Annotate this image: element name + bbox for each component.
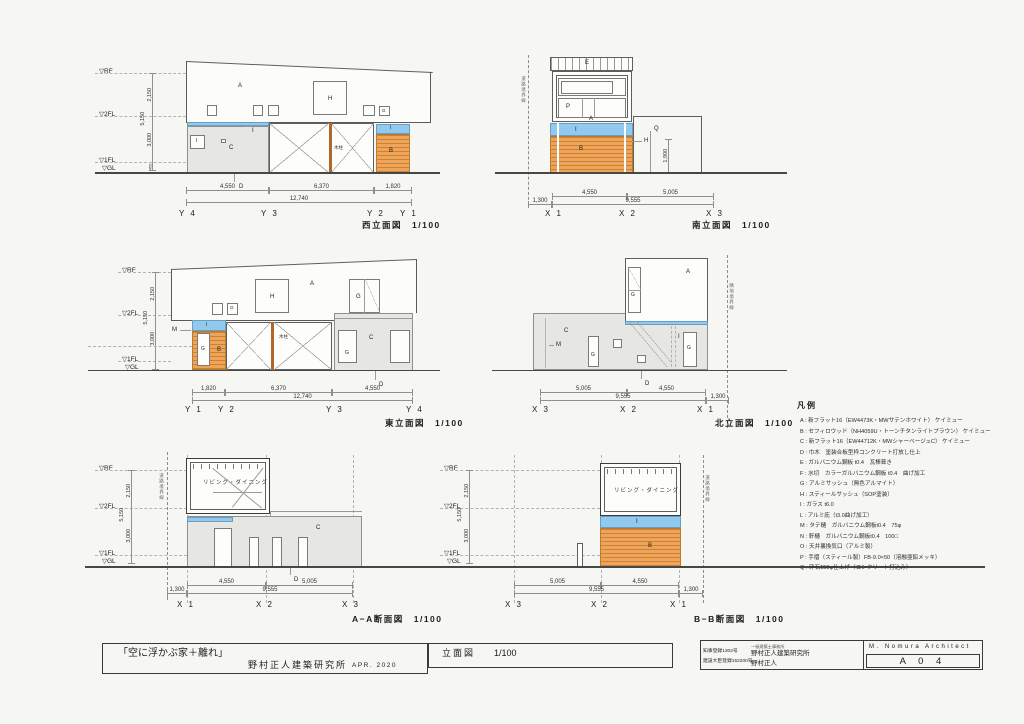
architect-name: 野村正人: [751, 661, 777, 668]
project-title: 「空に浮かぶ家＋離れ」: [118, 649, 228, 659]
registration-1: 知事登録1302号: [703, 650, 738, 655]
office-type: 一級建築士事務所: [751, 645, 785, 649]
office-name: 野村正人建築研究所: [248, 661, 347, 670]
registration-2: 建設大臣登録152200号: [703, 660, 753, 665]
date-label: APR. 2020: [352, 663, 397, 670]
architect-name-en: M. Nomura Architect: [869, 644, 971, 650]
title-block: 「空に浮かぶ家＋離れ」 野村正人建築研究所 APR. 2020 立面図 1/10…: [0, 0, 1024, 724]
divider-line: [863, 640, 864, 670]
drawing-scale: 1/100: [494, 649, 517, 658]
sheet-number: A 0 4: [866, 657, 980, 667]
drawing-sheet: ▽RF ▽2FL ▽1FL ▽GL 2,150 5,150 3,000 450 …: [0, 0, 1024, 724]
drawing-name: 立面図: [442, 649, 475, 658]
office-name-2: 野村正人建築研究所: [751, 651, 810, 658]
